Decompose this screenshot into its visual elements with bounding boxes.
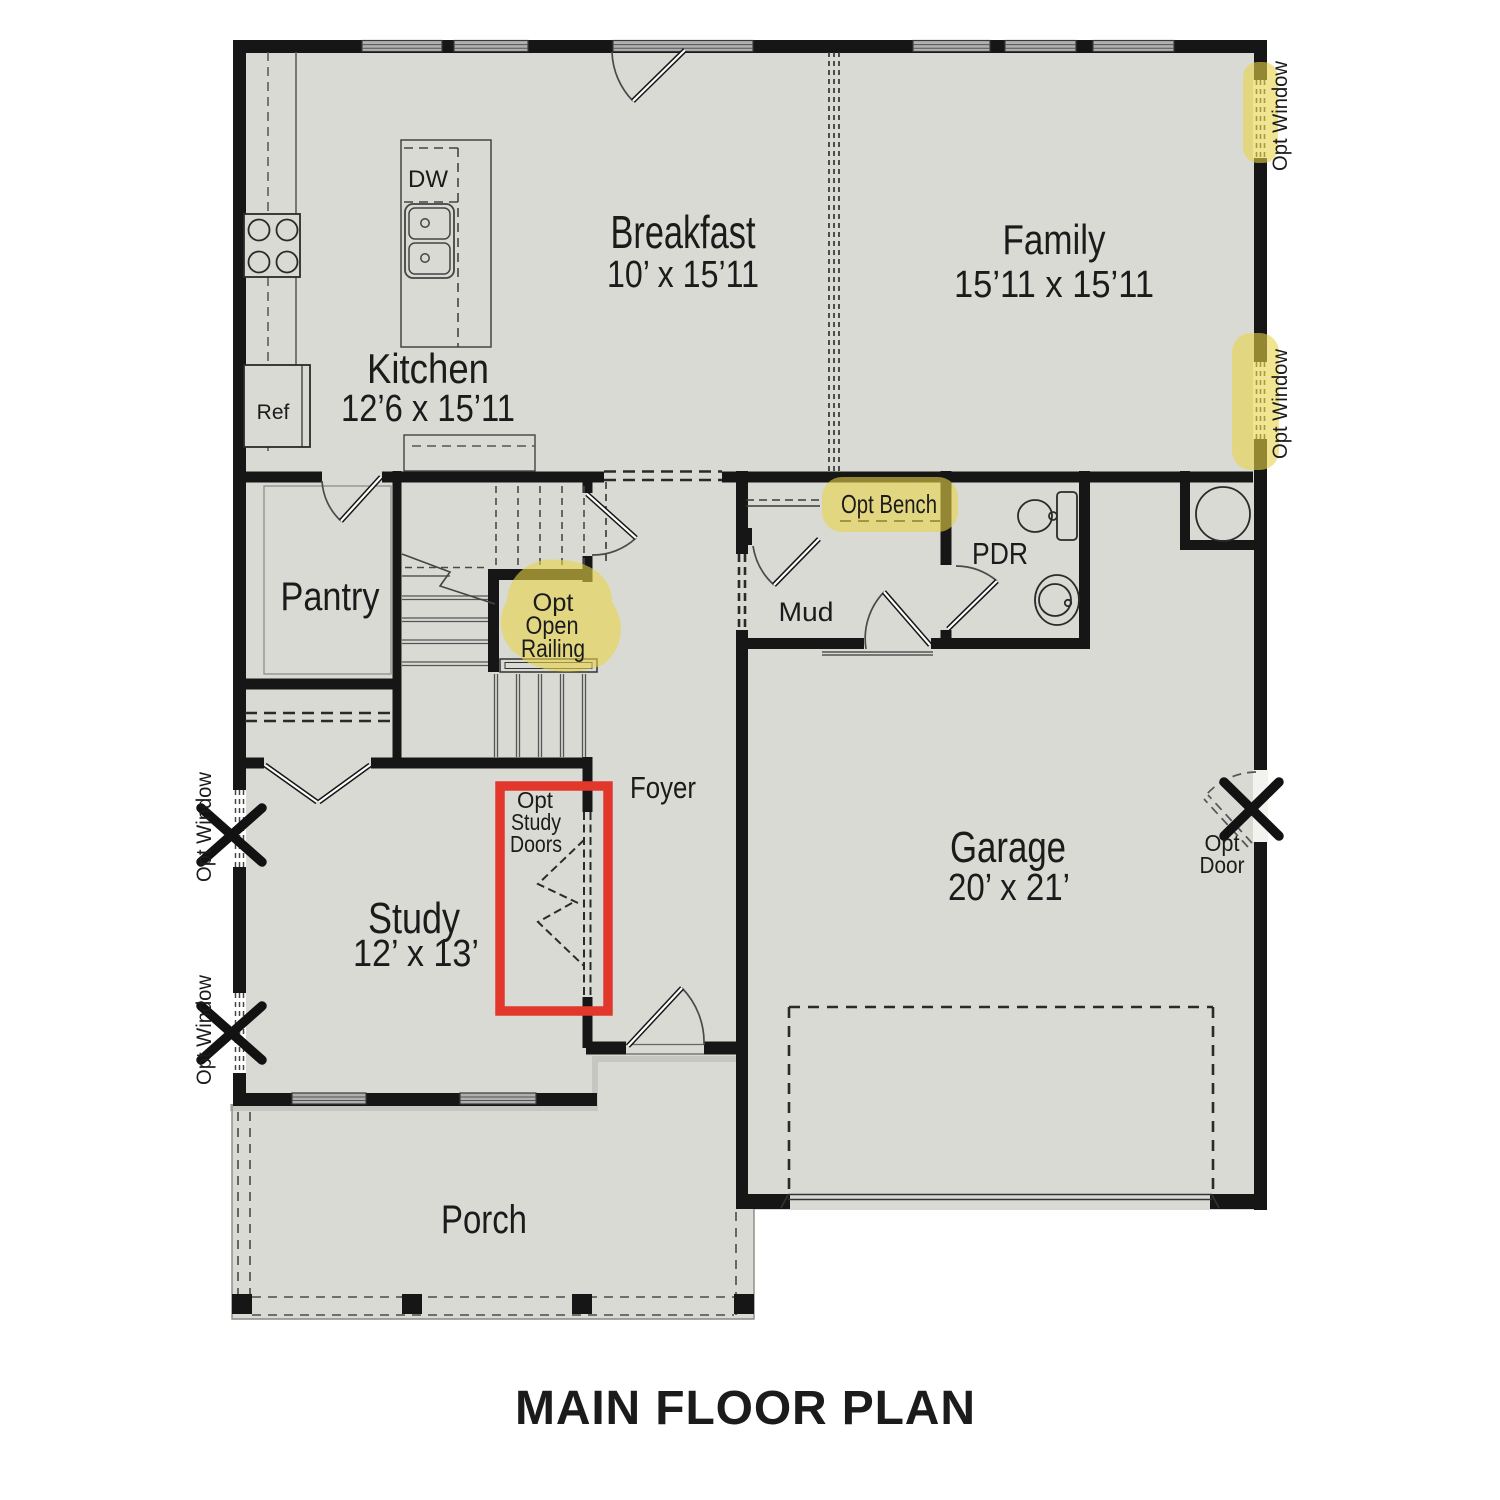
svg-text:Kitchen: Kitchen: [367, 345, 489, 392]
svg-text:Railing: Railing: [521, 635, 585, 663]
svg-text:Family: Family: [1003, 216, 1106, 263]
svg-text:Foyer: Foyer: [630, 770, 696, 805]
svg-text:Mud: Mud: [779, 597, 834, 627]
svg-text:Opt Bench: Opt Bench: [841, 489, 937, 519]
svg-text:12’ x 13’: 12’ x 13’: [353, 933, 479, 975]
svg-text:Doors: Doors: [510, 831, 562, 857]
svg-text:Pantry: Pantry: [281, 575, 380, 619]
svg-text:20’ x 21’: 20’ x 21’: [948, 867, 1070, 909]
svg-text:Garage: Garage: [950, 823, 1066, 872]
svg-text:12’6 x 15’11: 12’6 x 15’11: [341, 388, 515, 430]
svg-text:Opt Window: Opt Window: [1269, 348, 1292, 459]
svg-text:Porch: Porch: [441, 1198, 527, 1242]
svg-text:Ref: Ref: [257, 401, 290, 424]
svg-text:10’ x 15’11: 10’ x 15’11: [607, 254, 759, 296]
svg-text:Opt Window: Opt Window: [1269, 60, 1292, 171]
svg-text:PDR: PDR: [972, 536, 1028, 571]
svg-text:MAIN FLOOR PLAN: MAIN FLOOR PLAN: [515, 1382, 979, 1435]
svg-text:15’11 x 15’11: 15’11 x 15’11: [954, 264, 1154, 306]
svg-text:Door: Door: [1200, 852, 1245, 878]
svg-text:Breakfast: Breakfast: [611, 206, 756, 258]
svg-text:Opt Window: Opt Window: [193, 974, 216, 1085]
svg-text:Opt Window: Opt Window: [193, 771, 216, 882]
svg-text:DW: DW: [408, 166, 448, 193]
